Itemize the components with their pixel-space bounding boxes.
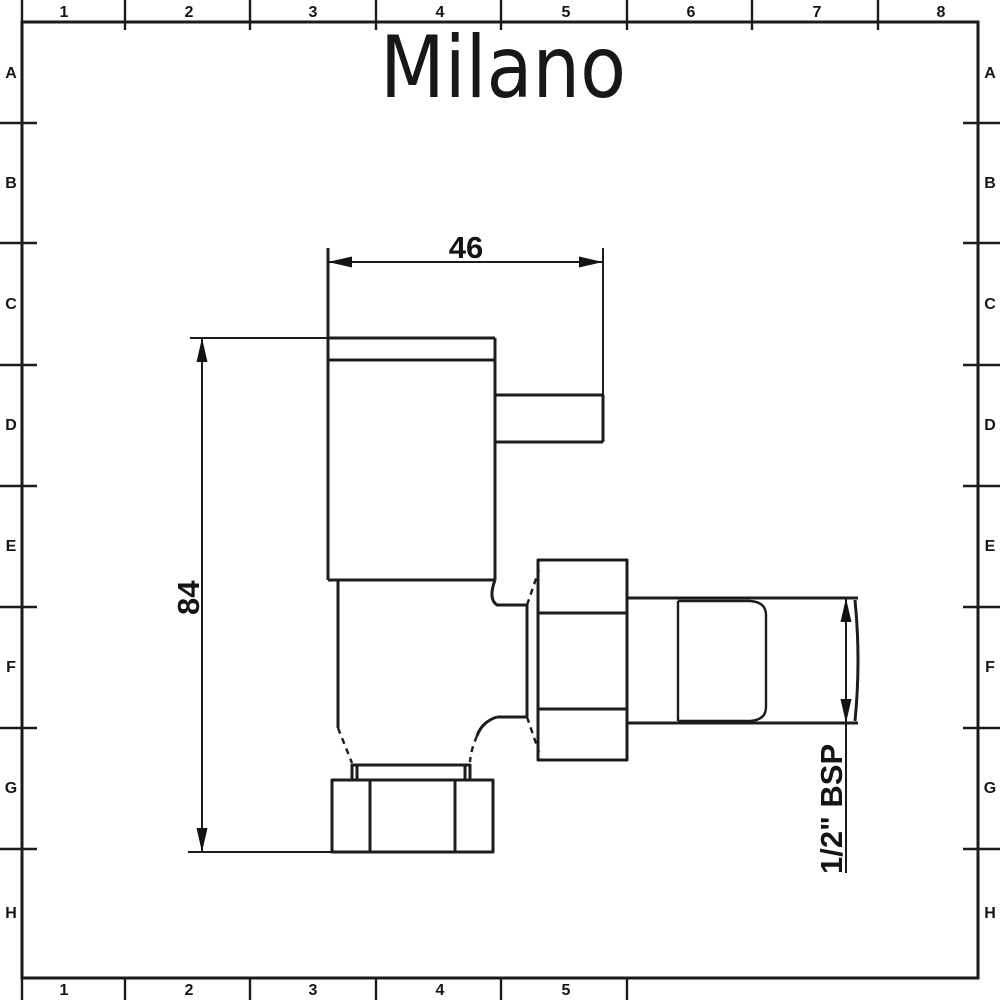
lower-collar-outline [352,765,470,780]
dimension-height-extensions [188,338,332,852]
dimension-width-arrow-right [579,257,603,268]
bottom-band-dividers [22,978,627,1000]
grid-row-label-right-f: F [985,659,995,676]
valve-head-outline [328,248,495,580]
valve-neck-left-chamfer [338,728,352,763]
grid-col-label-top-1: 1 [60,4,69,21]
dimension-height: 84 [171,338,332,852]
dim-width-label: 46 [449,230,483,265]
grid-row-label-right-d: D [984,417,996,434]
pipe-nut-outline [332,780,493,852]
grid-row-label-left-g: G [5,780,17,797]
grid-col-label-bottom-1: 1 [60,982,69,999]
grid-row-label-left-b: B [5,175,17,192]
valve-port-thread-hidden [470,570,539,762]
grid-col-label-top-3: 3 [309,4,318,21]
grid-col-label-bottom-3: 3 [309,982,318,999]
dimension-width-arrow-left [328,257,352,268]
dimension-width: 46 [328,230,603,395]
right-band-dividers [963,123,1000,849]
grid-row-label-left-c: C [5,296,17,313]
grid-row-label-right-c: C [984,296,996,313]
grid-row-label-right-e: E [985,538,996,555]
dimension-thread: 1/2" BSP [814,598,852,874]
grid-col-label-top-8: 8 [937,4,946,21]
thread-size-label: 1/2" BSP [814,744,849,874]
grid-col-label-top-6: 6 [687,4,696,21]
dim-height-label: 84 [171,580,206,615]
sheet-frame [0,0,1000,1000]
grid-row-label-left-f: F [6,659,16,676]
dimension-height-arrow-top [197,338,208,362]
dimension-height-arrow-bottom [197,828,208,852]
grid-row-label-left-a: A [5,65,17,82]
valve-spout-outline [495,395,603,442]
grid-row-label-right-g: G [984,780,996,797]
grid-col-label-bottom-4: 4 [436,982,445,999]
grid-col-label-top-2: 2 [185,4,194,21]
dimension-thread-arrow-top [841,598,852,622]
grid-col-label-bottom-2: 2 [185,982,194,999]
grid-row-label-left-e: E [6,538,17,555]
grid-col-label-bottom-5: 5 [562,982,571,999]
grid-col-label-top-7: 7 [813,4,822,21]
valve-technical-drawing: 1 2 3 4 5 6 7 8 1 2 3 4 5 A B C D E F G … [0,0,1000,1000]
drawing-sheet: 1 2 3 4 5 6 7 8 1 2 3 4 5 A B C D E F G … [0,0,1000,1000]
valve-drawing [328,248,858,852]
thread-root-outline [678,601,766,721]
grid-row-label-left-h: H [5,905,17,922]
dimension-thread-arrow-bottom [841,699,852,723]
grid-row-label-right-h: H [984,905,996,922]
left-band-dividers [0,123,37,849]
grid-row-label-left-d: D [5,417,17,434]
tail-pipe-outline [627,598,858,723]
union-nut-outline [538,560,627,760]
valve-port-outline [477,580,527,736]
grid-row-label-right-a: A [984,65,996,82]
grid-row-label-right-b: B [984,175,996,192]
milano-logo: Milano [380,18,626,118]
